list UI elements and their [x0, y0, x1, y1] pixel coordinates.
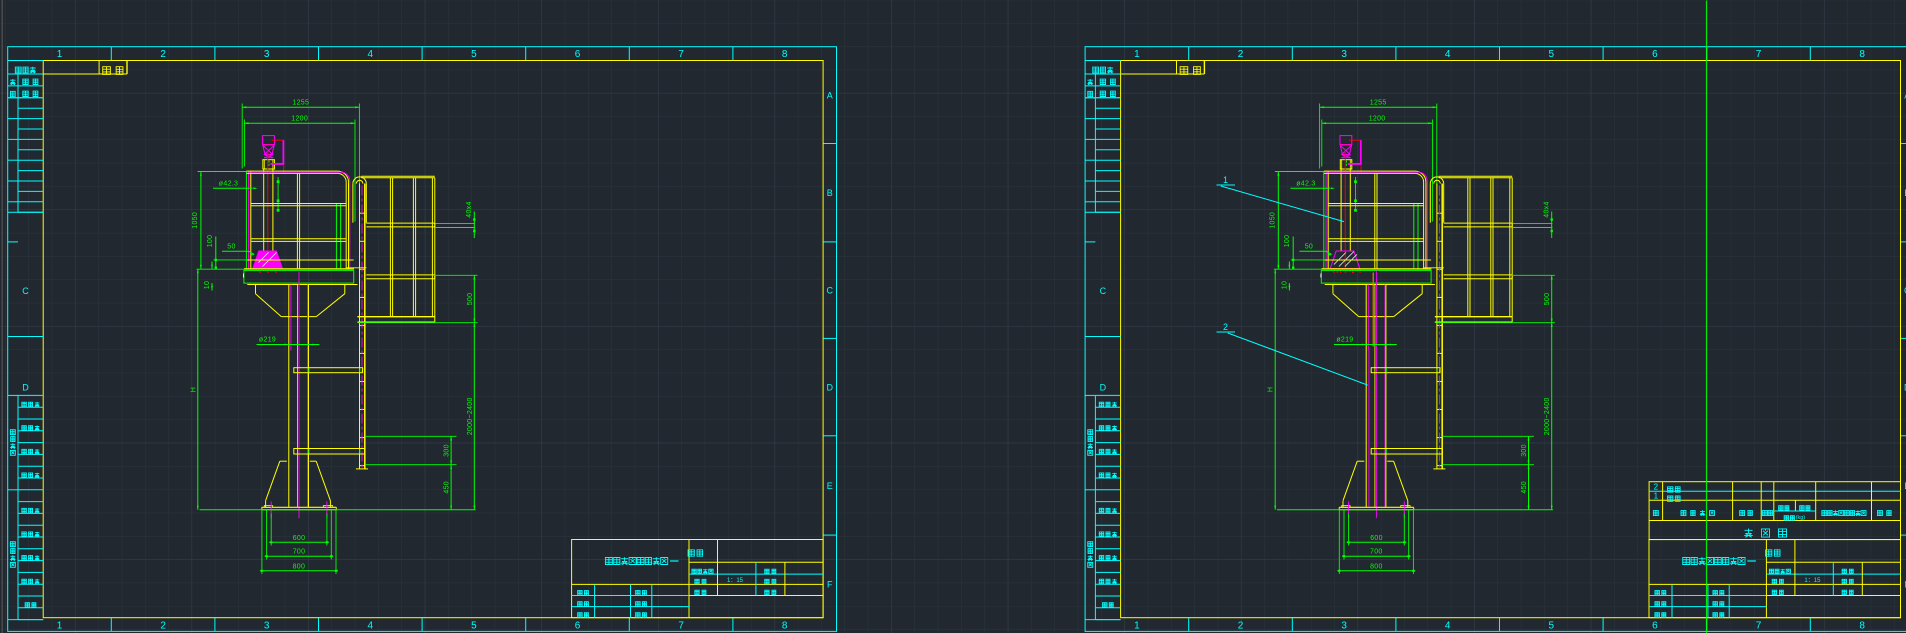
svg-text:2: 2 [160, 620, 166, 631]
svg-text:1：15: 1：15 [1804, 578, 1821, 584]
svg-text:50: 50 [227, 244, 235, 251]
svg-text:E: E [827, 481, 833, 491]
svg-text:450: 450 [444, 481, 451, 494]
svg-text:7: 7 [678, 49, 684, 60]
svg-text:40x4: 40x4 [466, 201, 473, 217]
svg-text:500: 500 [467, 293, 474, 306]
svg-text:10: 10 [1282, 281, 1289, 289]
svg-text:50: 50 [1305, 244, 1313, 251]
svg-text:7: 7 [678, 620, 684, 631]
svg-text:6: 6 [1652, 49, 1658, 60]
svg-text:4: 4 [1445, 620, 1451, 631]
svg-text:3: 3 [1341, 49, 1347, 60]
svg-text:C: C [827, 286, 834, 296]
svg-text:7: 7 [1756, 49, 1762, 60]
svg-text:1: 1 [57, 49, 63, 60]
svg-text:1200: 1200 [291, 116, 308, 123]
svg-text:6: 6 [575, 620, 581, 631]
svg-text:700: 700 [1370, 549, 1383, 556]
svg-text:C: C [22, 286, 29, 296]
svg-text:5: 5 [1549, 620, 1555, 631]
svg-text:4: 4 [368, 620, 374, 631]
svg-text:2: 2 [1238, 49, 1244, 60]
svg-text:1050: 1050 [1269, 212, 1276, 229]
svg-text:8: 8 [1859, 620, 1865, 631]
svg-text:500: 500 [1544, 293, 1551, 306]
svg-text:D: D [1100, 383, 1107, 393]
svg-text:ø42.3: ø42.3 [219, 181, 238, 188]
svg-text:300: 300 [1521, 444, 1528, 457]
svg-text:100: 100 [207, 235, 214, 248]
svg-text:5: 5 [1549, 49, 1555, 60]
svg-text:1: 1 [1654, 492, 1659, 501]
svg-text:C: C [1100, 286, 1107, 296]
svg-text:4: 4 [1445, 49, 1451, 60]
svg-text:450: 450 [1521, 481, 1528, 494]
svg-text:5: 5 [471, 49, 477, 60]
svg-text:ø42.3: ø42.3 [1296, 181, 1315, 188]
svg-text:2: 2 [160, 49, 166, 60]
svg-text:3: 3 [1341, 620, 1347, 631]
svg-text:700: 700 [293, 549, 306, 556]
svg-text:600: 600 [1370, 535, 1383, 542]
svg-text:8: 8 [1859, 49, 1865, 60]
svg-text:ø219: ø219 [1336, 337, 1353, 344]
svg-text:3: 3 [264, 620, 270, 631]
svg-text:8: 8 [782, 49, 788, 60]
svg-text:10: 10 [204, 281, 211, 289]
svg-text:6: 6 [1652, 620, 1658, 631]
svg-text:7: 7 [1756, 620, 1762, 631]
svg-text:A: A [827, 91, 833, 101]
svg-text:3: 3 [264, 49, 270, 60]
svg-text:1255: 1255 [1370, 100, 1387, 107]
svg-text:(kg): (kg) [1796, 515, 1806, 521]
svg-text:H: H [1268, 387, 1275, 392]
svg-text:2000~2400: 2000~2400 [1544, 397, 1551, 435]
svg-text:1050: 1050 [192, 212, 199, 229]
svg-text:4: 4 [368, 49, 374, 60]
svg-text:2000~2400: 2000~2400 [467, 397, 474, 435]
svg-text:1255: 1255 [292, 100, 309, 107]
svg-text:100: 100 [1284, 235, 1291, 248]
svg-text:1: 1 [1223, 175, 1228, 185]
svg-text:600: 600 [293, 535, 306, 542]
svg-text:8: 8 [782, 620, 788, 631]
svg-text:H: H [190, 387, 197, 392]
svg-text:1: 1 [1134, 49, 1140, 60]
svg-text:D: D [827, 383, 834, 393]
svg-text:2: 2 [1238, 620, 1244, 631]
svg-text:D: D [22, 383, 29, 393]
svg-text:6: 6 [575, 49, 581, 60]
svg-text:2: 2 [1654, 483, 1659, 492]
svg-text:800: 800 [1370, 563, 1383, 570]
svg-text:1: 1 [57, 620, 63, 631]
svg-text:5: 5 [471, 620, 477, 631]
svg-text:800: 800 [293, 563, 306, 570]
svg-text:1200: 1200 [1369, 116, 1386, 123]
svg-text:1: 1 [1134, 620, 1140, 631]
svg-text:2: 2 [1223, 322, 1228, 332]
svg-text:F: F [827, 579, 833, 589]
svg-text:ø219: ø219 [259, 337, 276, 344]
svg-text:40x4: 40x4 [1544, 201, 1551, 217]
svg-text:1：15: 1：15 [727, 578, 744, 584]
svg-text:300: 300 [444, 444, 451, 457]
svg-text:B: B [827, 188, 833, 198]
